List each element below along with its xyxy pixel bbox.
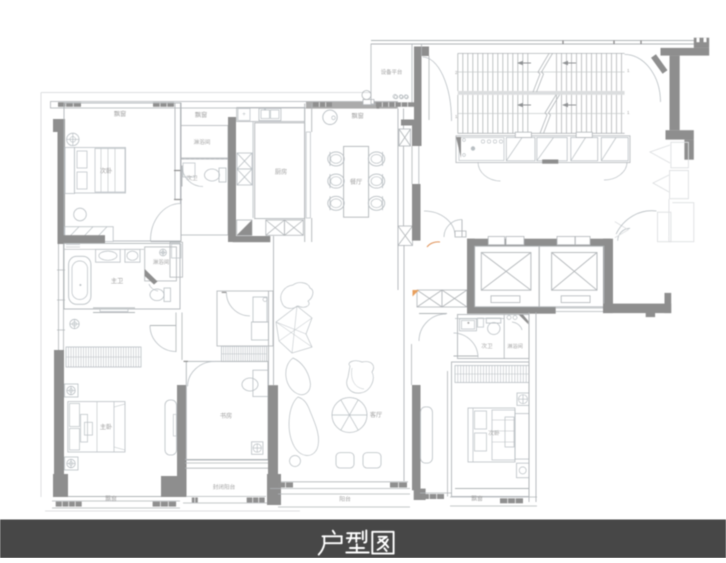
svg-text:淋浴间: 淋浴间 — [194, 138, 211, 146]
svg-text:飘窗: 飘窗 — [105, 495, 117, 503]
svg-text:餐厅: 餐厅 — [350, 178, 362, 186]
svg-text:淋浴间: 淋浴间 — [507, 342, 523, 350]
svg-text:+: + — [242, 112, 246, 118]
svg-text:客厅: 客厅 — [370, 411, 382, 419]
svg-text:次卧: 次卧 — [488, 429, 500, 437]
svg-text:封闭阳台: 封闭阳台 — [213, 483, 236, 491]
svg-text:飘窗: 飘窗 — [471, 495, 483, 503]
svg-text:淋浴间: 淋浴间 — [153, 258, 169, 266]
svg-text:飘窗: 飘窗 — [195, 111, 207, 119]
svg-text:厨房: 厨房 — [275, 168, 287, 176]
svg-text:阳台: 阳台 — [339, 495, 351, 503]
svg-text:飘窗: 飘窗 — [352, 112, 364, 120]
svg-text:次卧: 次卧 — [100, 167, 112, 175]
svg-text:主卧: 主卧 — [100, 423, 112, 431]
svg-text:书房: 书房 — [220, 412, 232, 420]
svg-text:主卫: 主卫 — [111, 277, 123, 285]
svg-text:设备平台: 设备平台 — [381, 68, 403, 76]
svg-text:次卫: 次卫 — [481, 342, 493, 350]
svg-text:飘窗: 飘窗 — [114, 110, 126, 118]
